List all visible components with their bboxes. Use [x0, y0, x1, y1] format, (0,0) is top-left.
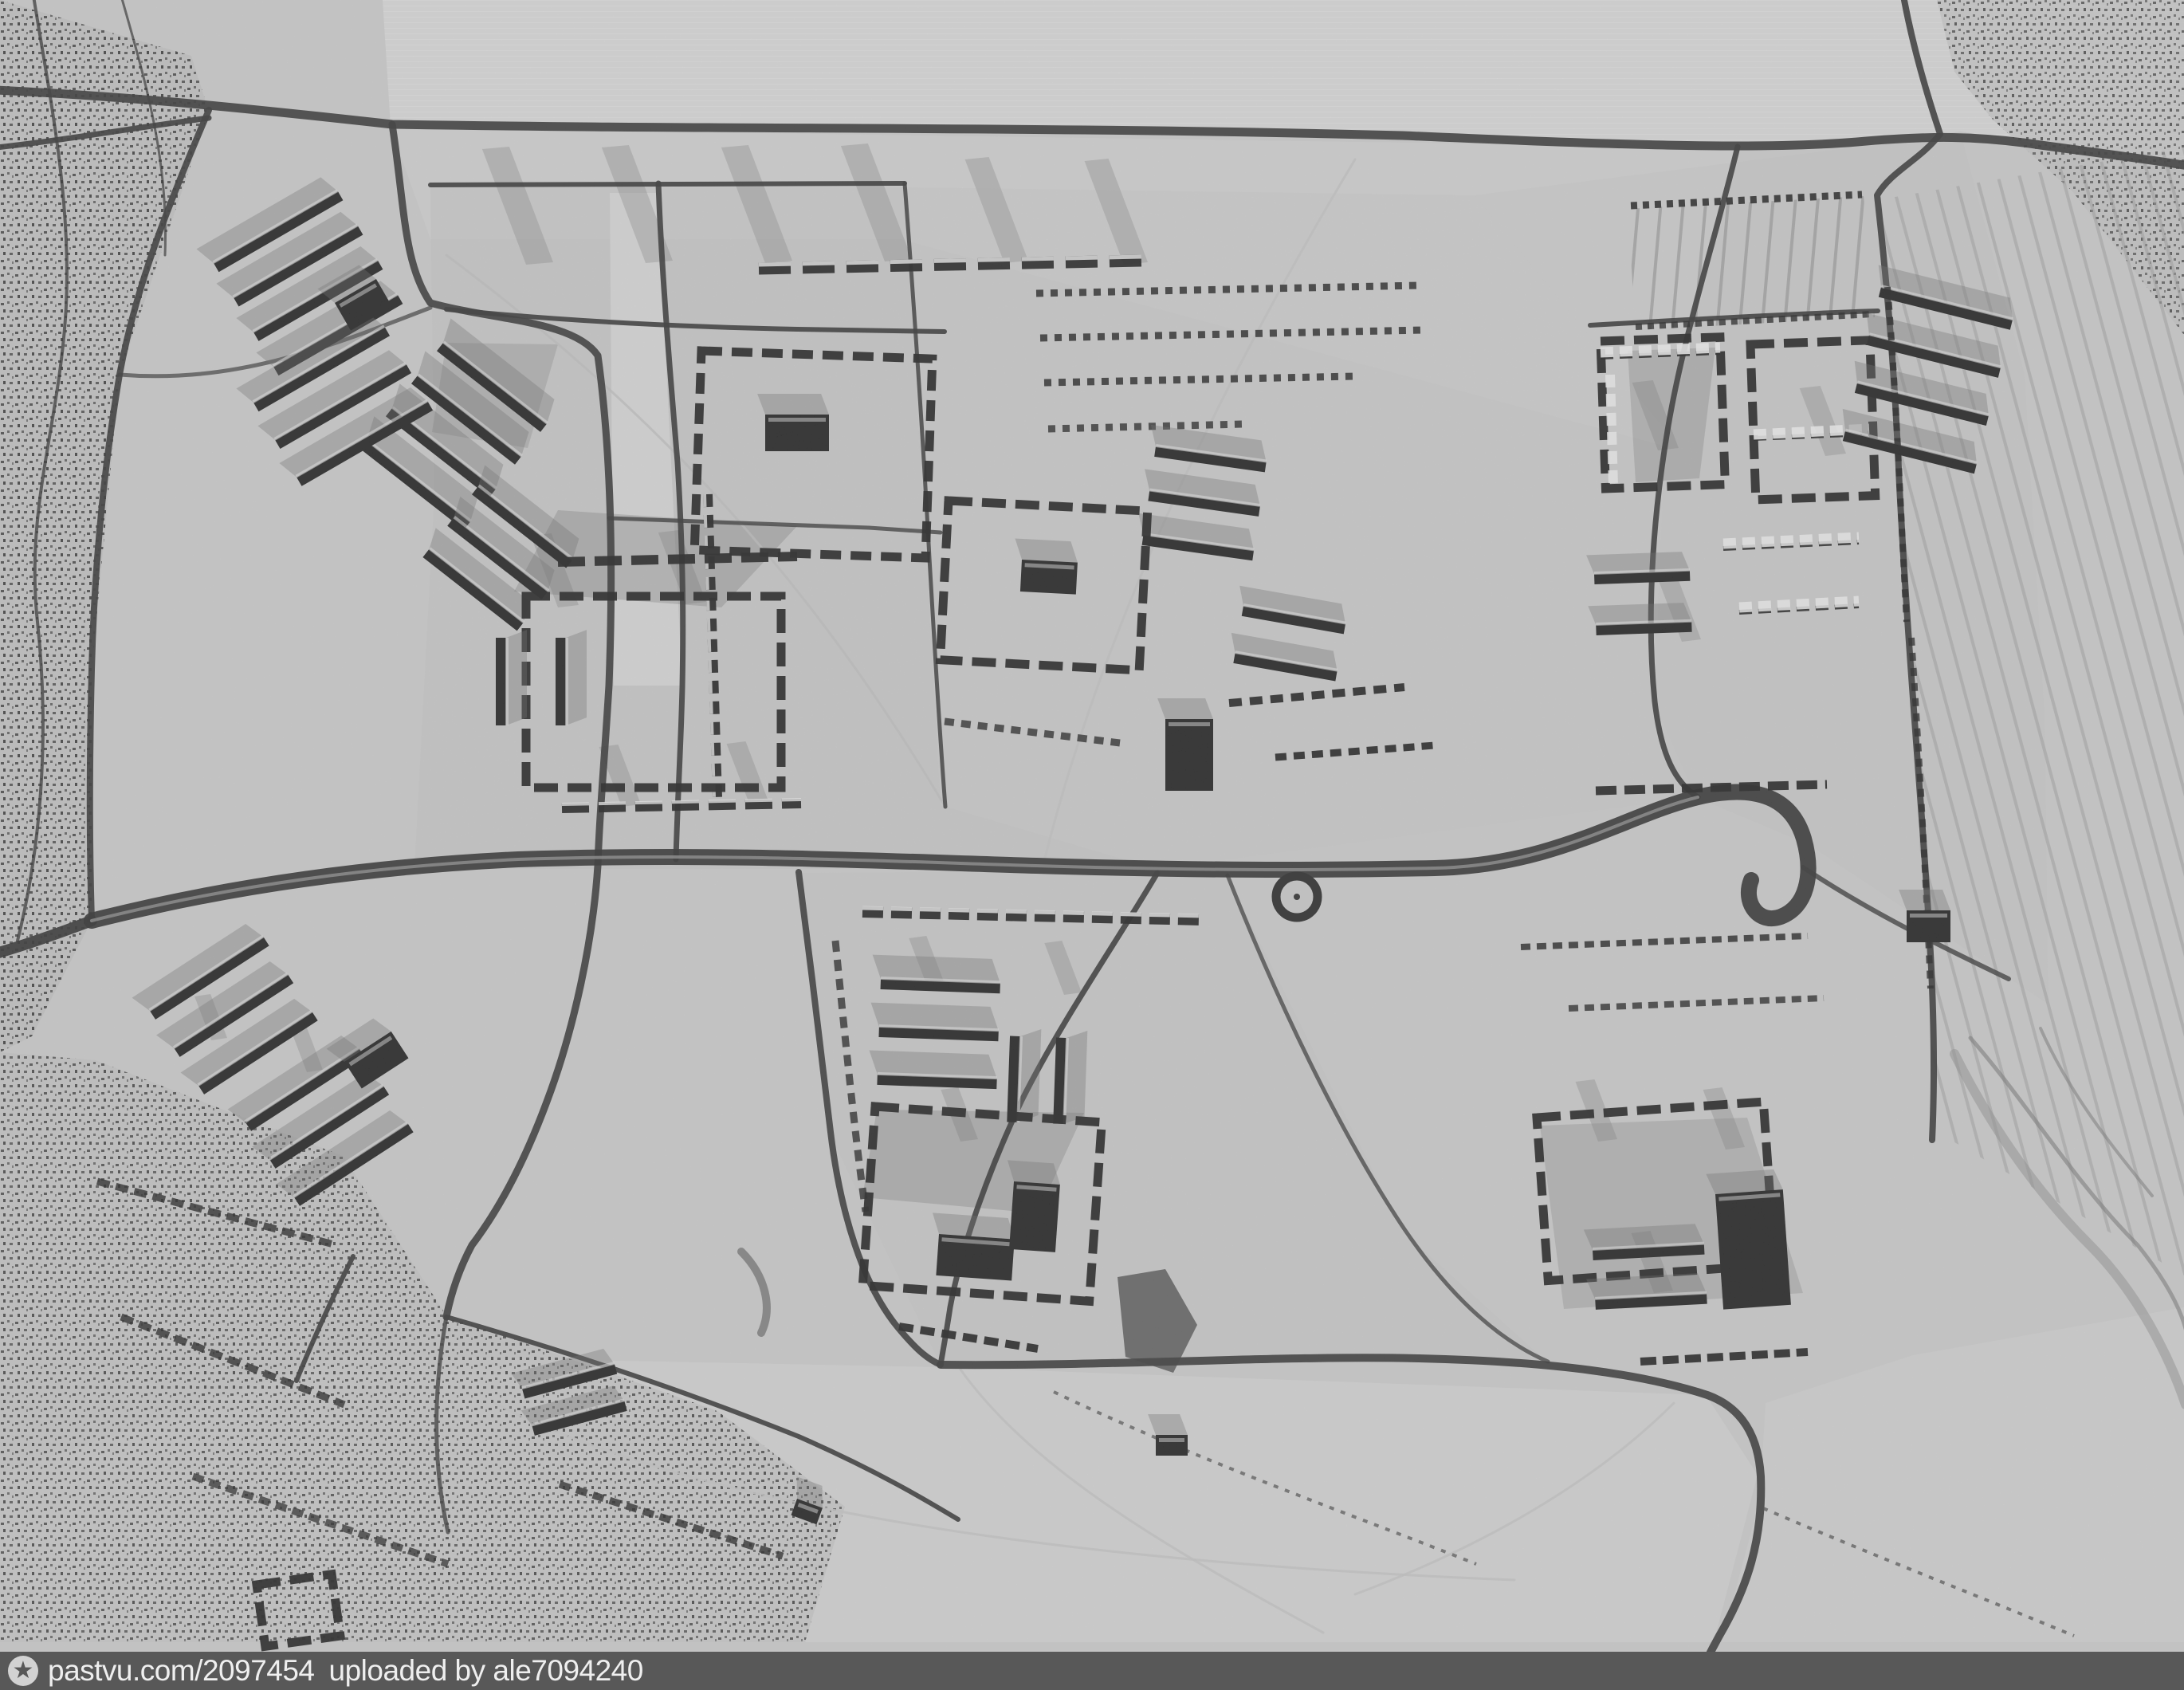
aerial-photo-canvas: [0, 0, 2184, 1690]
watermark-url: pastvu.com/2097454: [48, 1652, 315, 1690]
watermark-bar: ★ pastvu.com/2097454 uploaded by ale7094…: [0, 1652, 2184, 1690]
aerial-photo: ★ pastvu.com/2097454 uploaded by ale7094…: [0, 0, 2184, 1690]
film-grain-overlay: [0, 0, 2184, 1690]
watermark-uploader: uploaded by ale7094240: [329, 1652, 643, 1690]
pastvu-globe-star-icon: ★: [8, 1656, 38, 1686]
